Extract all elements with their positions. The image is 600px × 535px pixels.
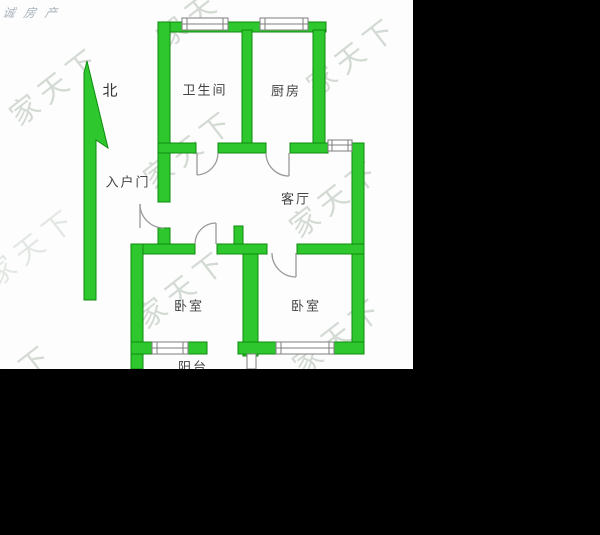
window-icon	[182, 18, 228, 30]
door-arc-bathroom	[197, 153, 218, 175]
wall-bottom-seg2	[188, 342, 207, 354]
wall-bath-kitchen-divider	[242, 30, 252, 145]
wall-bottom-seg3	[238, 342, 276, 354]
door-arc-kitchen	[266, 153, 289, 176]
wall-bottom-seg1	[131, 342, 152, 354]
letterbox-bottom	[0, 369, 600, 535]
wall-bedtop-seg2	[217, 244, 267, 254]
door-arc-bedroom-left	[195, 223, 216, 244]
wall-mid-seg3	[290, 143, 328, 153]
door-arc-entry	[140, 204, 164, 228]
room-label-bedroom-left: 卧室	[174, 296, 204, 315]
window-icon	[276, 342, 334, 354]
room-label-bedroom-right: 卧室	[291, 296, 321, 315]
wall-bedtop-seg3	[297, 244, 364, 254]
room-label-bathroom: 卫生间	[182, 80, 227, 99]
wall-kitchen-right	[313, 30, 325, 145]
wall-bottom-seg4	[334, 342, 364, 354]
wall-stub	[234, 226, 243, 244]
balcony-door-leaf	[247, 354, 256, 369]
window-icon	[260, 18, 308, 30]
room-label-kitchen: 厨房	[271, 81, 301, 100]
agency-caption: 诚房产	[1, 4, 68, 21]
walls	[84, 22, 364, 369]
door-arc-bedroom-right	[272, 253, 296, 277]
wall-mid-seg1	[158, 143, 196, 153]
wall-left-lower	[158, 228, 170, 245]
window-icon	[152, 342, 188, 354]
floor-plan-page: 诚房产 家天下 家天下 家天下 家天下 家天下 家天下 家天下 家天下 家天下	[0, 0, 600, 535]
wall-mid-seg2	[218, 143, 266, 153]
room-label-living: 客厅	[281, 189, 311, 208]
room-label-entry: 入户门	[105, 172, 150, 191]
north-label: 北	[102, 80, 117, 101]
floor-plan-drawing	[0, 0, 413, 369]
wall-left-upper	[158, 22, 170, 202]
window-icon	[328, 140, 352, 151]
wall-bedroom-divider	[243, 254, 258, 356]
